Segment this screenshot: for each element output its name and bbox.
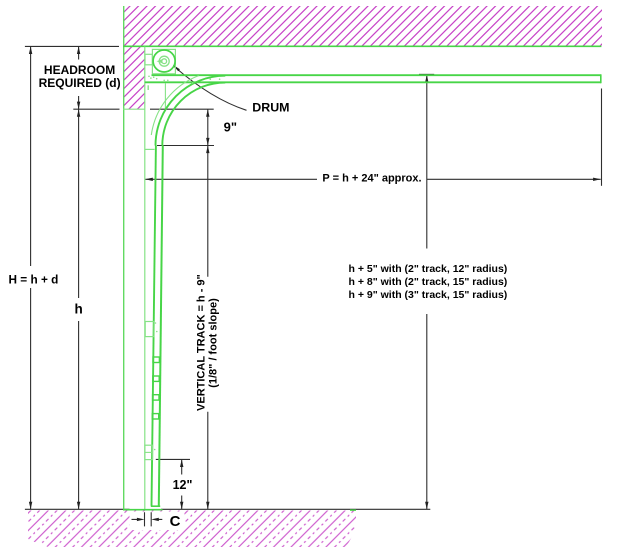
svg-text:VERTICAL TRACK = h - 9": VERTICAL TRACK = h - 9" <box>196 274 208 411</box>
svg-text:C: C <box>170 513 181 530</box>
svg-text:h + 9" with (3" track, 15" rad: h + 9" with (3" track, 15" radius) <box>349 289 508 301</box>
svg-text:H = h + d: H = h + d <box>9 272 59 286</box>
svg-text:h + 8" with (2" track, 15" rad: h + 8" with (2" track, 15" radius) <box>349 276 508 288</box>
svg-text:DRUM: DRUM <box>252 101 289 115</box>
svg-text:9": 9" <box>224 119 237 134</box>
svg-text:h + 5" with (2" track, 12" rad: h + 5" with (2" track, 12" radius) <box>349 263 508 275</box>
svg-text:HEADROOM: HEADROOM <box>44 63 115 77</box>
svg-text:P = h + 24" approx.: P = h + 24" approx. <box>322 173 421 185</box>
svg-text:12": 12" <box>173 478 193 492</box>
svg-text:h: h <box>74 302 82 317</box>
svg-text:REQUIRED (d): REQUIRED (d) <box>39 76 121 90</box>
svg-text:(1/8" / foot slope): (1/8" / foot slope) <box>207 298 219 388</box>
